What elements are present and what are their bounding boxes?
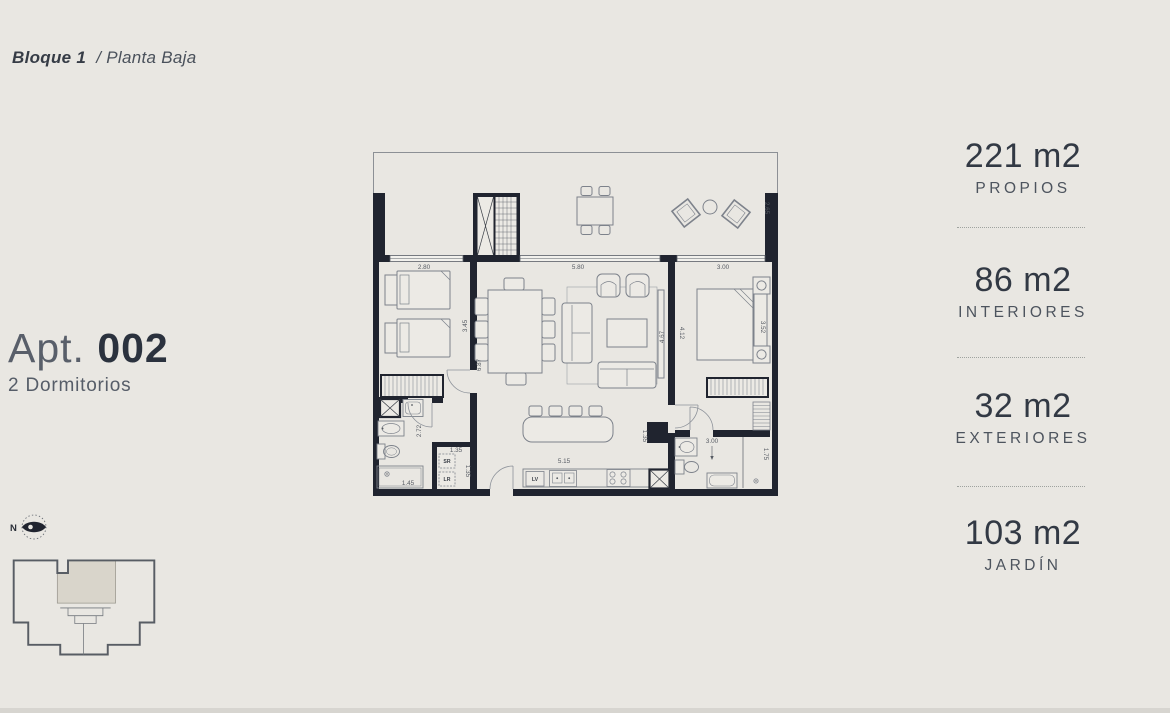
breadcrumb: Bloque 1 / Planta Baja — [12, 48, 197, 68]
living-room — [475, 274, 664, 388]
stat-value: 86 m2 — [928, 262, 1118, 299]
shower — [377, 466, 423, 488]
stat-propios: 221 m2 PROPIOS — [928, 138, 1118, 198]
stat-label: JARDÍN — [928, 557, 1118, 575]
north-label: N — [10, 523, 17, 534]
dim-label: 3.52 — [759, 321, 766, 334]
unit-divisions — [60, 608, 110, 655]
bedroom-1 — [381, 271, 450, 397]
dim-label: 3.00 — [717, 264, 730, 271]
stat-exteriores: 32 m2 EXTERIORES — [928, 388, 1118, 448]
apartment-number: 002 — [97, 325, 168, 371]
stat-value: 103 m2 — [928, 515, 1118, 552]
shaft — [478, 197, 517, 255]
stat-divider — [957, 486, 1085, 487]
stat-value: 32 m2 — [928, 388, 1118, 425]
stat-value: 221 m2 — [928, 138, 1118, 175]
terrace — [374, 153, 778, 258]
apartment-title: Apt. 002 2 Dormitorios — [8, 327, 169, 397]
block-label: Bloque 1 — [12, 48, 86, 67]
dim-label: 2.65 — [763, 202, 770, 215]
dim-label: 5.15 — [558, 458, 571, 465]
appliance-labels: SR LR LV — [443, 459, 538, 483]
floorplan: 2.80 5.80 3.00 2.65 3.45 6.87 4.67 4.12 … — [360, 140, 790, 510]
dim-label: 4.67 — [659, 330, 666, 343]
island — [523, 417, 613, 442]
stat-label: INTERIORES — [928, 304, 1118, 322]
floor-label: / Planta Baja — [96, 48, 196, 67]
dim-label: 1.35 — [641, 430, 648, 443]
stat-label: PROPIOS — [928, 180, 1118, 198]
dim-label: 4.12 — [678, 327, 685, 340]
stat-interiores: 86 m2 INTERIORES — [928, 262, 1118, 322]
apartment-type: 2 Dormitorios — [8, 375, 169, 397]
dim-label: 3.00 — [706, 438, 719, 445]
bottom-edge — [0, 708, 1170, 713]
highlighted-unit — [57, 560, 115, 603]
lounge-chair — [672, 199, 700, 227]
stat-divider — [957, 227, 1085, 228]
stat-label: EXTERIORES — [928, 430, 1118, 448]
wardrobe — [381, 375, 443, 397]
building-locator — [4, 547, 164, 665]
dim-label: 6.87 — [476, 358, 483, 371]
north-arrow-icon: N — [6, 509, 52, 545]
duct — [647, 422, 668, 443]
kitchen — [523, 406, 670, 489]
dim-label: 1.35 — [450, 447, 463, 454]
master-bedroom — [697, 277, 770, 430]
dim-label: 5.80 — [572, 264, 585, 271]
brochure-page: Bloque 1 / Planta Baja Apt. 002 2 Dormit… — [0, 0, 1170, 713]
dim-label: 2.72 — [416, 424, 423, 437]
dim-label: 1.75 — [762, 448, 769, 461]
stove — [607, 470, 630, 487]
dim-label: 1.35 — [464, 465, 471, 478]
dim-label: 1.45 — [402, 480, 415, 487]
stat-jardin: 103 m2 JARDÍN — [928, 515, 1118, 575]
apartment-prefix: Apt. — [8, 325, 97, 371]
windows — [390, 256, 765, 262]
dim-label: 2.80 — [418, 264, 431, 271]
stat-divider — [957, 357, 1085, 358]
washer-label: LR — [444, 477, 451, 483]
lounge-chair — [722, 200, 750, 228]
dishwasher-label: LV — [532, 477, 539, 483]
dim-label: 3.45 — [462, 319, 469, 332]
dryer-label: SR — [443, 459, 450, 465]
